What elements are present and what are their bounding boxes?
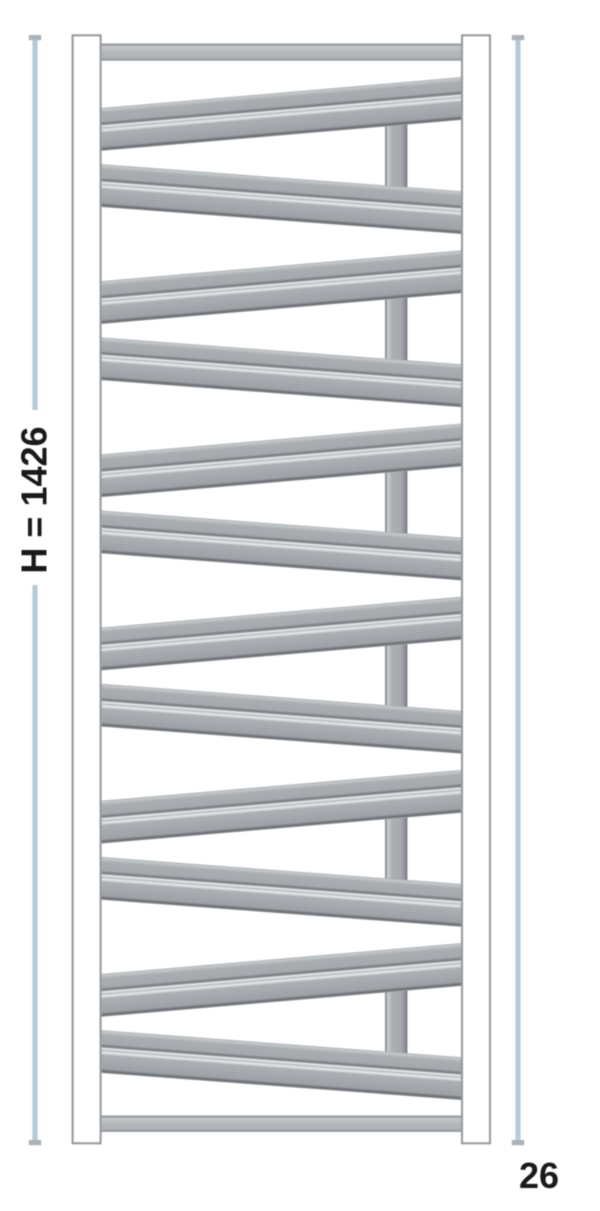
svg-text:H = 1426: H = 1426 bbox=[14, 426, 55, 573]
svg-text:26: 26 bbox=[519, 1155, 559, 1196]
